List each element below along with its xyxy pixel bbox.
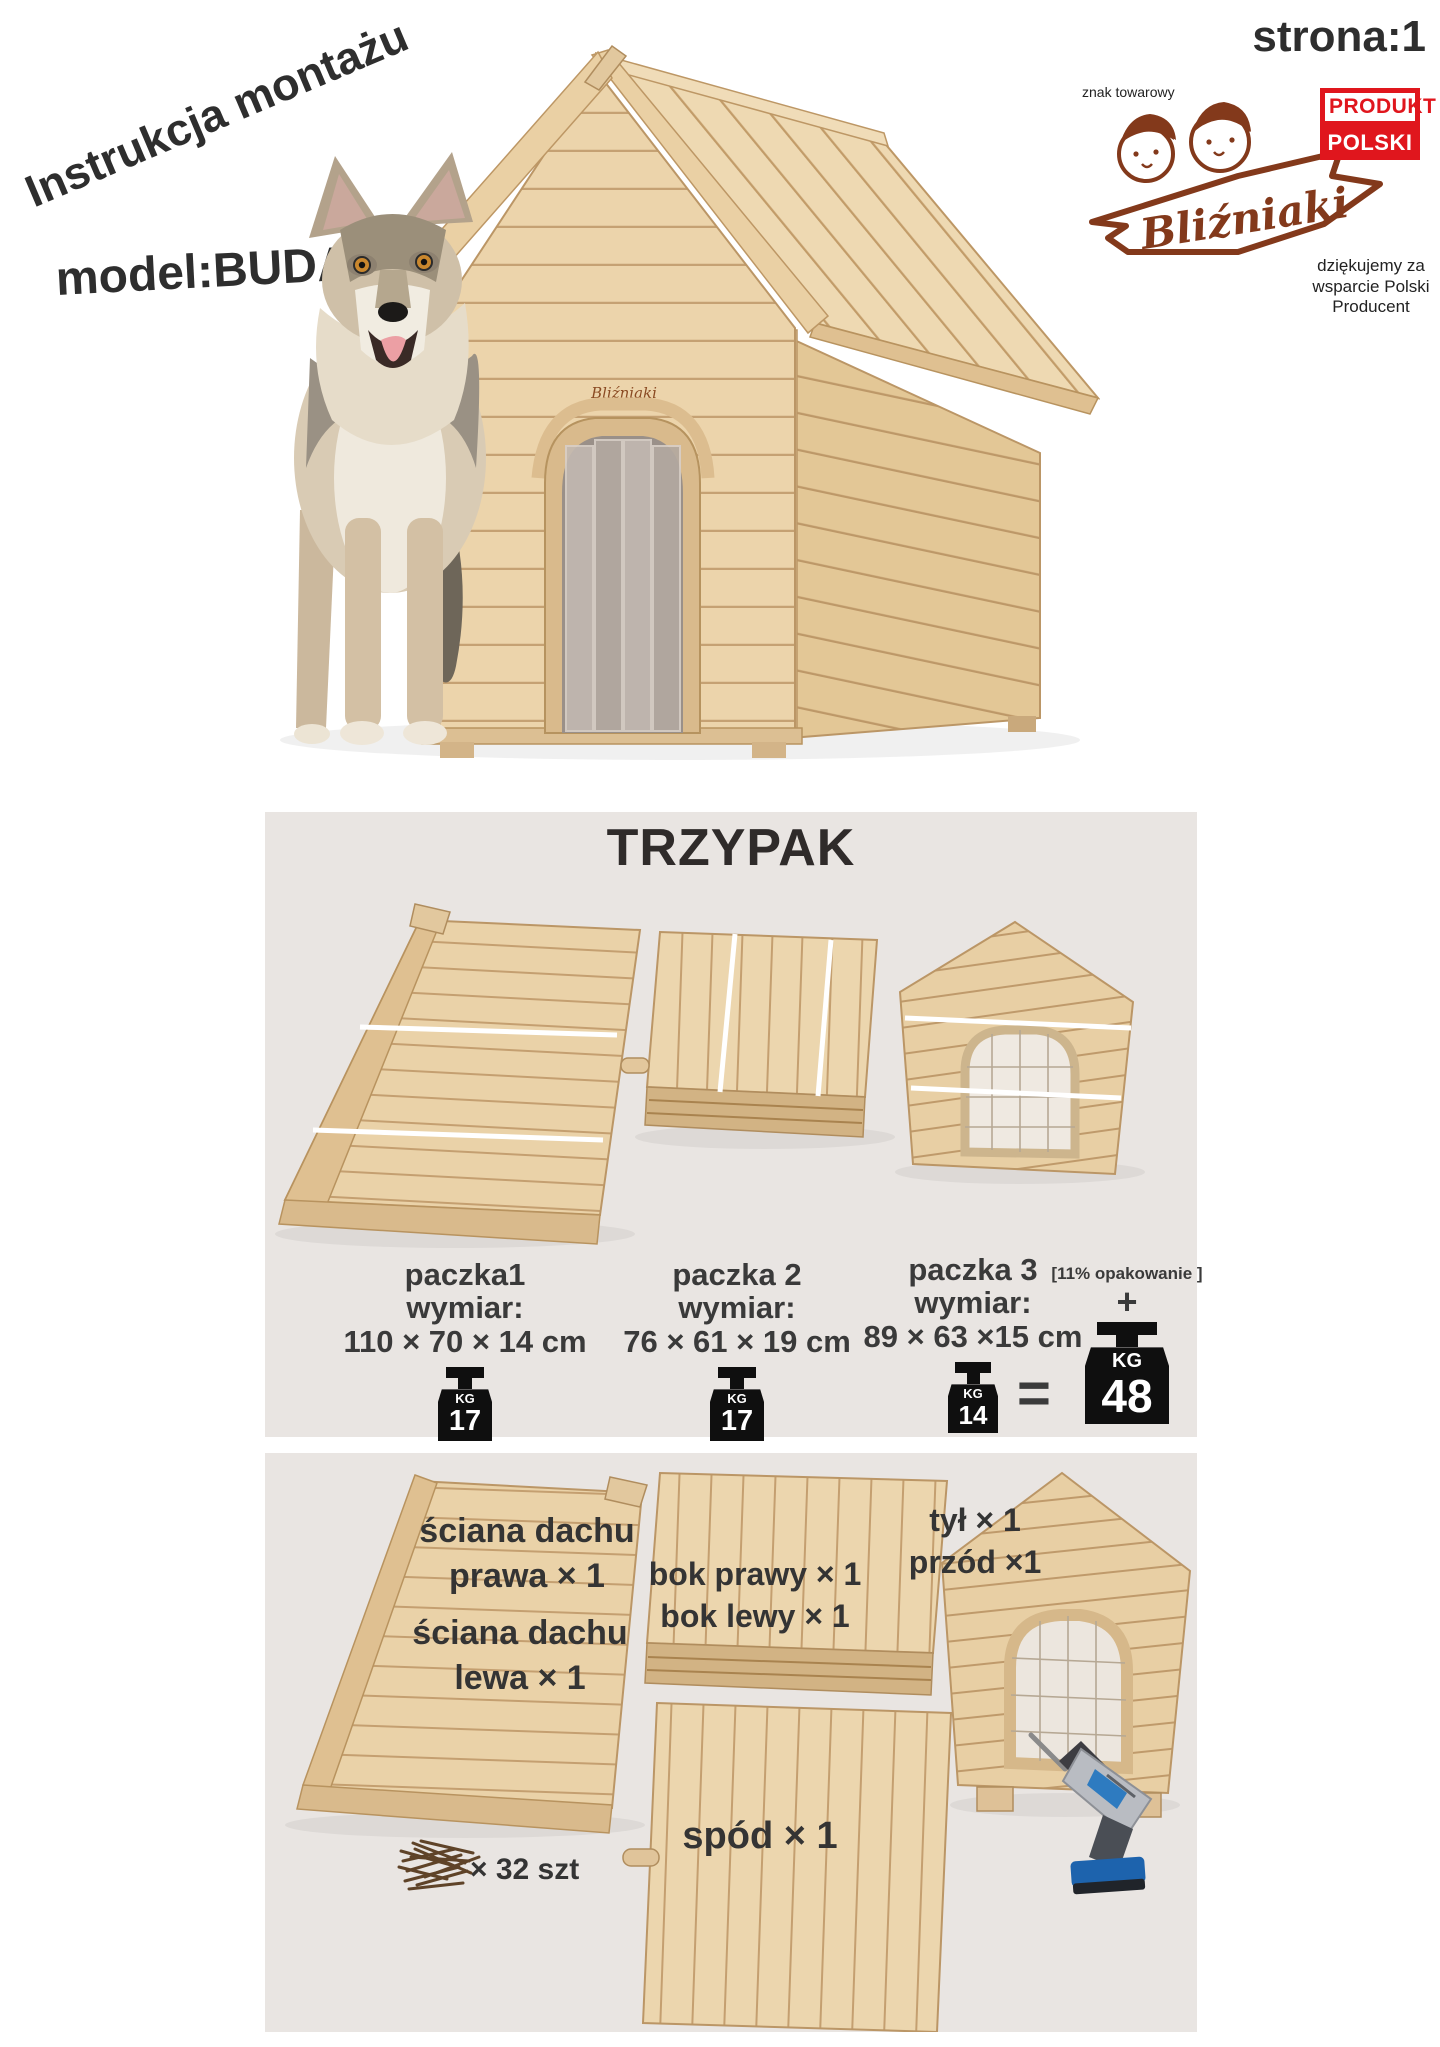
package-dim-label: wymiar: [406, 1291, 523, 1324]
equals-sign: = [1017, 1360, 1051, 1427]
total-weight-block: [11% opakowanie ] + KG 48 [1051, 1264, 1203, 1424]
dog-nose [378, 302, 408, 322]
badge-line-produkt: PRODUKT [1320, 88, 1420, 126]
package-1-image [275, 904, 640, 1248]
weight-value: 14 [959, 1402, 988, 1428]
packages-title: TRZYPAK [265, 818, 1197, 878]
package-dimensions: 76 × 61 × 19 cm [623, 1325, 851, 1358]
package-dimensions: 110 × 70 × 14 cm [343, 1325, 586, 1358]
label-line: bok lewy × 1 [605, 1595, 905, 1637]
package-1-label: paczka1 wymiar: 110 × 70 × 14 cm KG 17 [280, 1258, 650, 1441]
packages-panel: TRZYPAK [265, 812, 1197, 1437]
package-2-image [621, 932, 895, 1149]
twins-icon [1119, 102, 1251, 181]
bottom-label: spód × 1 [645, 1815, 875, 1858]
total-weight-icon: KG 48 [1085, 1322, 1169, 1424]
package-dim-label: wymiar: [678, 1291, 795, 1324]
label-line: ściana dachu [327, 1509, 727, 1554]
hero-photo: Bliźniaki [240, 38, 1100, 764]
package-dim-label: wymiar: [914, 1286, 1031, 1319]
back-front-label: tył × 1 przód ×1 [845, 1499, 1105, 1583]
weight-value: 48 [1101, 1373, 1152, 1419]
parts-panel: ściana dachu prawa × 1 ściana dachu lewa… [265, 1453, 1197, 2032]
plus-sign: + [1116, 1286, 1137, 1318]
package-2-label: paczka 2 wymiar: 76 × 61 × 19 cm KG 17 [617, 1258, 857, 1441]
package-dimensions: 89 × 63 ×15 cm [864, 1320, 1083, 1353]
door-flaps [566, 440, 680, 731]
package-name: paczka 2 [672, 1258, 801, 1291]
produkt-polski-badge: PRODUKT POLSKI [1320, 88, 1420, 160]
weight-value: 17 [449, 1407, 481, 1436]
label-line: lewa × 1 [320, 1656, 720, 1701]
badge-line-polski: POLSKI [1320, 126, 1420, 160]
package-name: paczka 3 [908, 1253, 1037, 1286]
package-3-image [895, 922, 1145, 1184]
weight-icon: KG 17 [438, 1367, 492, 1441]
bottom-part-image [623, 1703, 951, 2032]
packages-illustration [265, 882, 1197, 1297]
label-line: przód ×1 [845, 1541, 1105, 1583]
weight-icon: KG 17 [710, 1367, 764, 1441]
weight-value: 17 [721, 1407, 753, 1436]
page-number: strona:1 [1252, 12, 1426, 62]
package-name: paczka1 [405, 1258, 526, 1291]
label-line: tył × 1 [845, 1499, 1105, 1541]
support-note: dziękujemy za wsparcie Polski Producent [1296, 256, 1440, 318]
instruction-sheet-page: { "header": { "rotated_title": "Instrukc… [0, 0, 1440, 2047]
screws-label: × 32 szt [470, 1853, 630, 1887]
screws-pile-icon [399, 1841, 479, 1889]
weight-icon: KG 14 [948, 1362, 998, 1433]
